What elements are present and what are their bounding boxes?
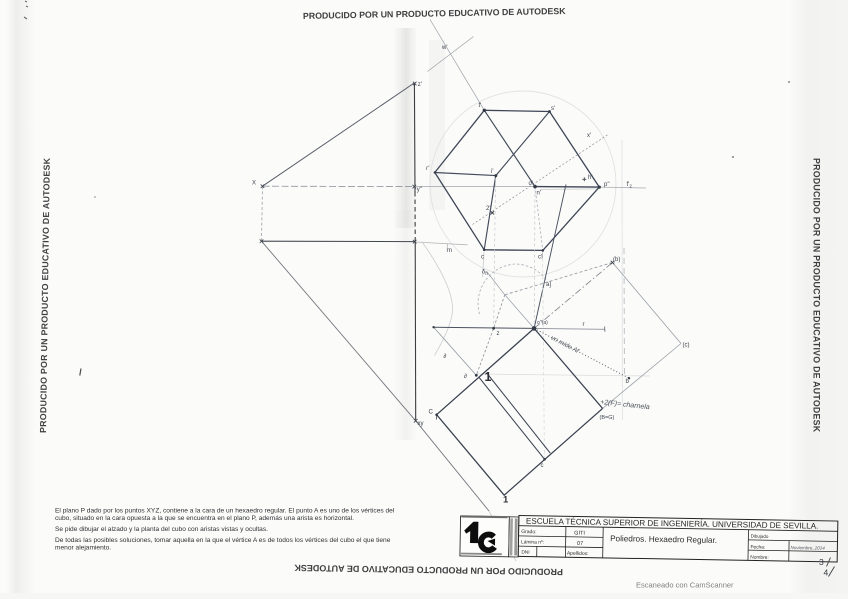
svg-text:(B=G): (B=G) xyxy=(600,415,615,421)
svg-text:Poliedros. Hexaedro Regular.: Poliedros. Hexaedro Regular. xyxy=(610,534,717,545)
svg-text:Noviembre_2014: Noviembre_2014 xyxy=(790,545,825,551)
svg-text:i': i' xyxy=(491,169,493,175)
svg-text:Lámina nº:: Lámina nº: xyxy=(521,539,544,545)
svg-text:z': z' xyxy=(418,82,422,88)
svg-text:a]: a] xyxy=(546,282,551,288)
svg-text:1: 1 xyxy=(485,370,492,384)
svg-text:f'2: f'2 xyxy=(627,182,633,189)
svg-text:De todas las posibles solucion: De todas las posibles soluciones, tomar … xyxy=(55,537,391,544)
svg-text:C: C xyxy=(429,410,434,416)
svg-text:t': t' xyxy=(479,103,482,109)
svg-text:cubo, situado en la cara opues: cubo, situado en la cara opuesta a la qu… xyxy=(55,515,354,522)
svg-text:DNI: DNI xyxy=(521,550,529,556)
svg-text:Apellidos:: Apellidos: xyxy=(567,551,589,557)
svg-text:n': n' xyxy=(537,191,541,197)
svg-text:δh: δh xyxy=(482,270,488,277)
svg-text:o''(a): o''(a) xyxy=(537,320,548,326)
svg-text:Fecha:: Fecha: xyxy=(750,544,765,550)
svg-text:El plano P dado por los puntos: El plano P dado por los puntos XYZ, cont… xyxy=(55,508,395,515)
svg-text:Nombre:: Nombre: xyxy=(750,555,769,561)
svg-text:c: c xyxy=(541,463,544,469)
svg-text:y'': y'' xyxy=(417,187,422,193)
svg-text:menor alejamiento.: menor alejamiento. xyxy=(55,545,111,552)
svg-text:Dibujado: Dibujado xyxy=(751,534,769,539)
svg-text:s': s' xyxy=(551,106,555,112)
svg-text:Escaneado con CamScanner: Escaneado con CamScanner xyxy=(636,581,734,590)
svg-text:z: z xyxy=(497,331,500,337)
svg-text:w': w' xyxy=(441,45,447,51)
svg-text:c: c xyxy=(481,255,484,261)
svg-text:07: 07 xyxy=(577,541,583,547)
svg-text:h': h' xyxy=(588,175,592,181)
svg-text:2': 2' xyxy=(486,206,490,212)
svg-text:o': o' xyxy=(529,181,533,187)
svg-text:c': c' xyxy=(538,255,542,261)
svg-text:p'': p'' xyxy=(604,182,610,188)
svg-text:∂: ∂ xyxy=(444,353,447,360)
svg-text:xy: xy xyxy=(418,421,424,427)
svg-text:Se pide dibujar el alzado y la: Se pide dibujar el alzado y la planta de… xyxy=(55,526,268,533)
svg-text:1: 1 xyxy=(503,495,509,506)
svg-text:PRODUCIDO POR UN PRODUCTO EDUC: PRODUCIDO POR UN PRODUCTO EDUCATIVO DE A… xyxy=(812,158,822,433)
svg-text:(c): (c) xyxy=(683,343,690,349)
svg-text:Grado:: Grado: xyxy=(521,529,536,535)
svg-text:r: r xyxy=(583,322,585,328)
svg-text:(b): (b) xyxy=(613,257,620,263)
svg-text:X: X xyxy=(252,181,256,187)
svg-text:GITI: GITI xyxy=(574,530,585,536)
svg-text:3: 3 xyxy=(819,557,824,567)
svg-text:x': x' xyxy=(587,133,591,139)
svg-text:4: 4 xyxy=(824,568,829,578)
svg-text:m: m xyxy=(447,248,452,254)
svg-text:∂: ∂ xyxy=(464,373,467,380)
